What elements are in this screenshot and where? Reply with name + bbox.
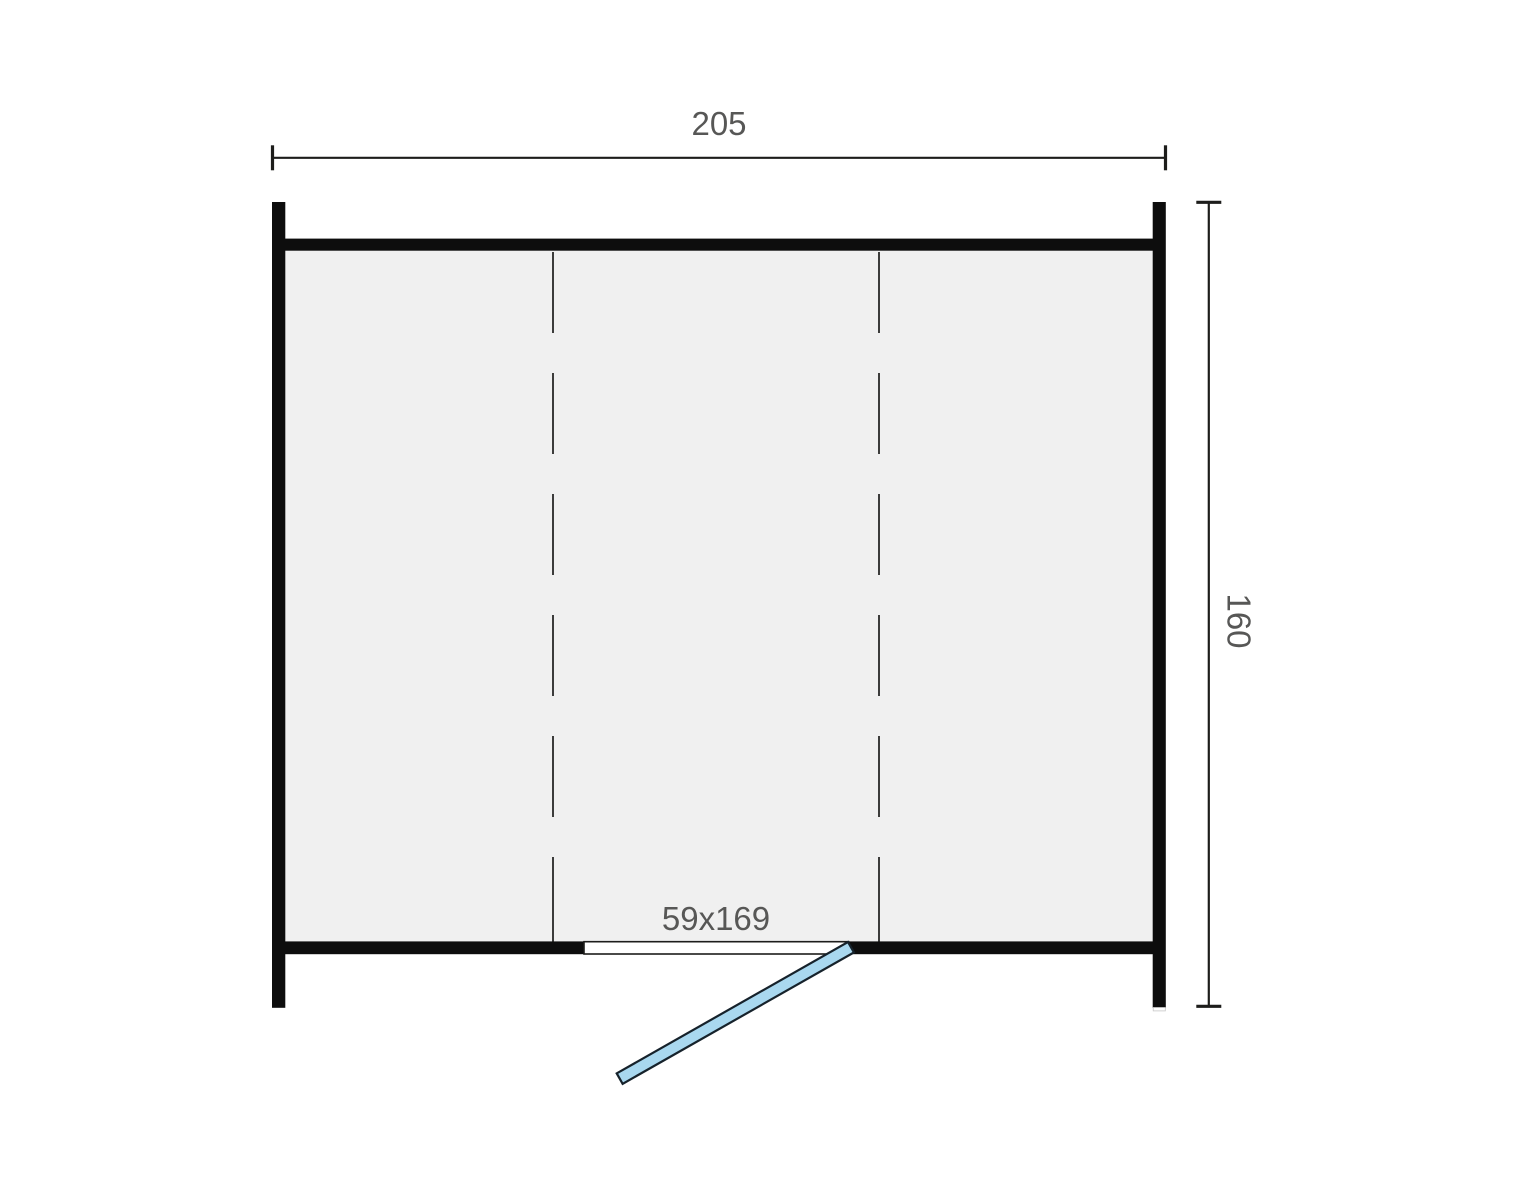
svg-text:59x169: 59x169 bbox=[662, 900, 770, 937]
svg-text:160: 160 bbox=[1221, 593, 1258, 648]
svg-text:205: 205 bbox=[691, 105, 746, 142]
